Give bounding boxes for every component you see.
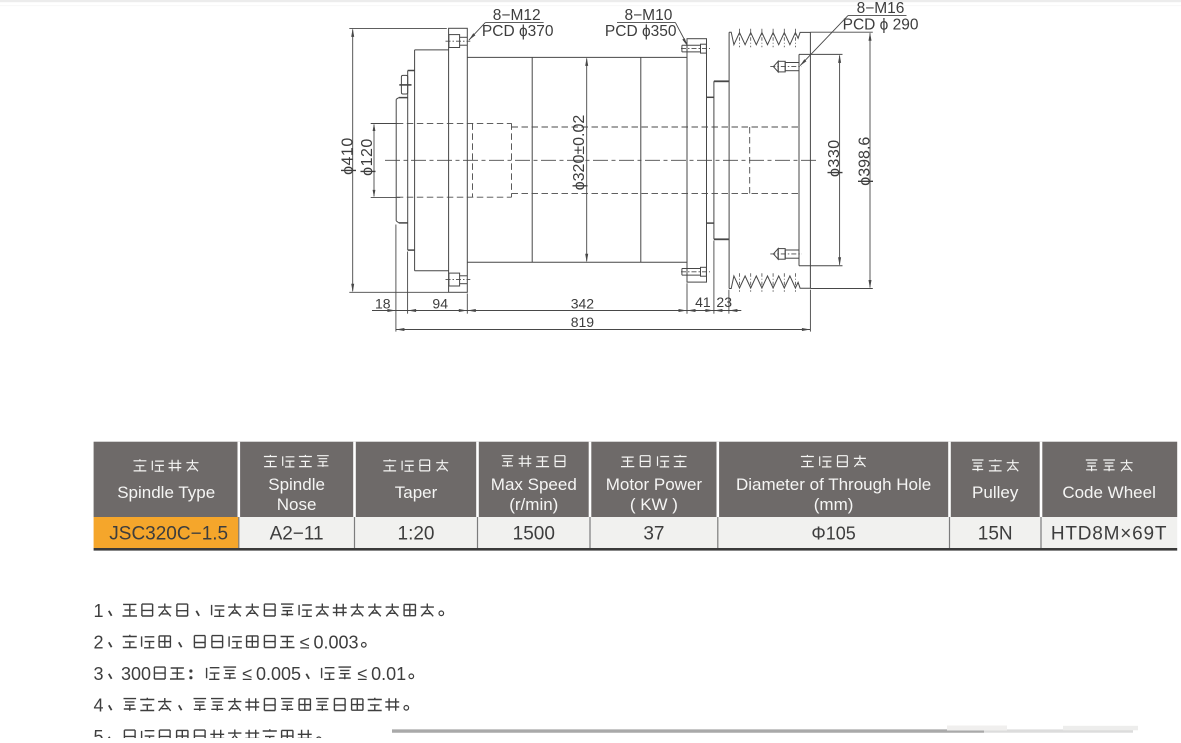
svg-text:ϕ120: ϕ120 [359,138,376,176]
svg-text:PCD ϕ350: PCD ϕ350 [605,23,677,40]
svg-text:1:20: 1:20 [398,523,435,544]
svg-text:8−M12: 8−M12 [493,7,541,24]
svg-text:A2−11: A2−11 [270,523,324,544]
svg-text:≤: ≤ [300,632,310,652]
svg-text:0.003: 0.003 [314,632,359,652]
svg-text:0.005: 0.005 [256,664,301,684]
svg-text:Nose: Nose [277,495,317,514]
svg-text:Φ105: Φ105 [811,523,855,543]
svg-text:Max Speed: Max Speed [491,475,577,494]
svg-text:ϕ398.6: ϕ398.6 [857,137,874,186]
svg-text:( KW ): ( KW ) [630,495,678,514]
svg-text:PCD ϕ 290: PCD ϕ 290 [843,16,919,33]
svg-text:≤: ≤ [357,664,367,684]
svg-text:Spindle Type: Spindle Type [117,483,215,502]
svg-text:≤: ≤ [242,664,252,684]
svg-text:23: 23 [716,294,732,310]
svg-text:ϕ330: ϕ330 [826,139,843,177]
svg-text:1: 1 [94,601,104,621]
svg-text:94: 94 [432,295,448,311]
svg-text:(r/min): (r/min) [509,495,558,514]
svg-text:JSC320C−1.5: JSC320C−1.5 [109,523,228,544]
svg-text:8−M16: 8−M16 [857,0,905,17]
svg-text:1500: 1500 [513,523,555,544]
svg-text:5: 5 [94,727,104,738]
svg-text:2: 2 [94,632,104,652]
svg-text:Diameter of Through Hole: Diameter of Through Hole [736,475,931,494]
svg-text:PCD ϕ370: PCD ϕ370 [482,23,554,40]
svg-text:Motor Power: Motor Power [606,475,703,494]
svg-text:3: 3 [94,664,104,684]
svg-text:37: 37 [643,523,664,544]
svg-text:(mm): (mm) [814,495,854,514]
svg-text:8−M10: 8−M10 [624,7,672,24]
svg-text:342: 342 [571,295,595,311]
svg-text:41: 41 [695,294,711,310]
svg-text:HTD8M×69T: HTD8M×69T [1051,523,1167,544]
svg-text:Taper: Taper [395,483,438,502]
svg-text:Code Wheel: Code Wheel [1062,483,1156,502]
svg-text:15N: 15N [978,523,1013,544]
svg-text:ϕ320±0.02: ϕ320±0.02 [571,115,588,191]
svg-text:ϕ410: ϕ410 [340,137,357,175]
svg-text:4: 4 [94,695,104,715]
svg-text:300: 300 [121,664,151,684]
svg-text:819: 819 [571,314,595,330]
svg-text:0.01: 0.01 [371,664,406,684]
svg-text:Spindle: Spindle [268,475,325,494]
svg-text:Pulley: Pulley [972,483,1019,502]
svg-text:18: 18 [375,295,391,311]
